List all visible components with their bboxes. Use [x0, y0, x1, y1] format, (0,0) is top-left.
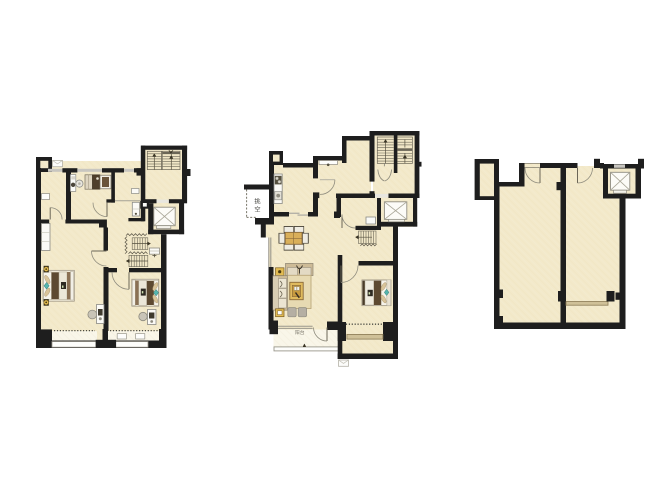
svg-text:阳台: 阳台	[295, 329, 305, 336]
svg-text:空: 空	[254, 206, 260, 214]
svg-text:挑: 挑	[254, 198, 260, 206]
